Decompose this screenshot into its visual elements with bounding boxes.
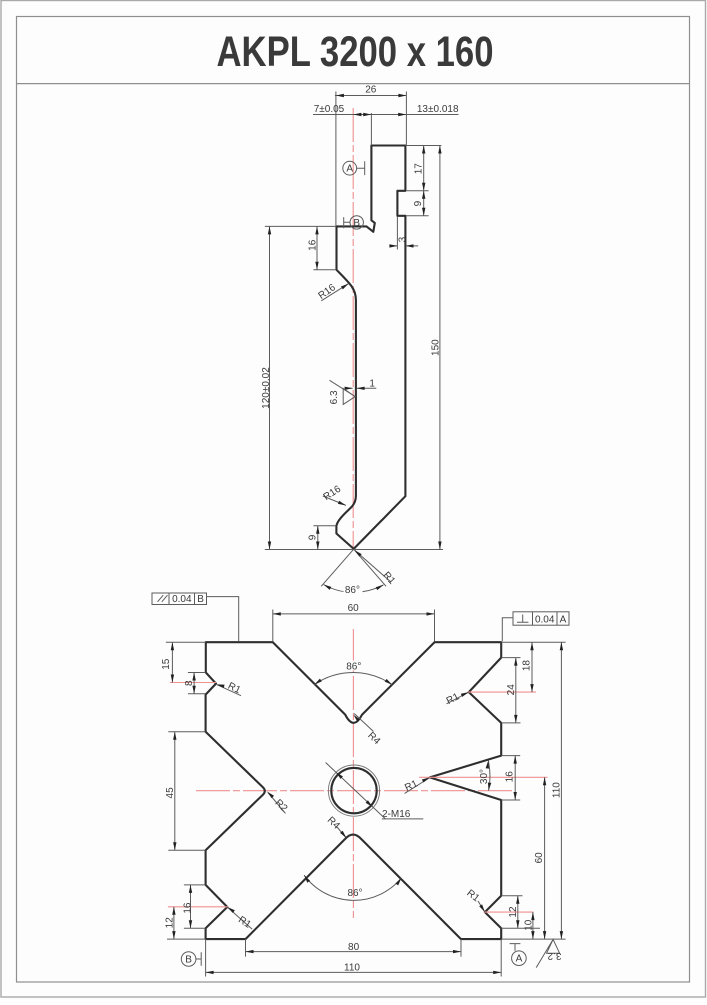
svg-text:7±0.05: 7±0.05 — [314, 104, 345, 115]
svg-text:17: 17 — [413, 163, 424, 175]
svg-text:3: 3 — [398, 236, 409, 242]
svg-text:18: 18 — [521, 660, 532, 672]
svg-text:0.04: 0.04 — [535, 615, 555, 626]
svg-text:30°: 30° — [479, 769, 490, 784]
svg-text:A: A — [346, 164, 353, 175]
svg-text:26: 26 — [365, 85, 377, 96]
svg-text:1: 1 — [369, 378, 375, 389]
svg-text:8: 8 — [184, 680, 195, 686]
svg-text:45: 45 — [165, 787, 176, 799]
svg-text:16: 16 — [182, 902, 193, 914]
svg-text:B: B — [353, 218, 360, 229]
svg-text:13±0.018: 13±0.018 — [417, 104, 459, 115]
svg-text:15: 15 — [161, 658, 172, 670]
svg-text:60: 60 — [348, 603, 360, 614]
svg-text:86°: 86° — [345, 585, 360, 596]
svg-text:B: B — [185, 955, 192, 966]
svg-text:150: 150 — [431, 339, 442, 356]
svg-text:60: 60 — [534, 852, 545, 864]
svg-text:110: 110 — [551, 782, 562, 798]
svg-text:24: 24 — [506, 684, 517, 696]
svg-text:12: 12 — [508, 906, 519, 918]
svg-text:B: B — [197, 594, 204, 605]
svg-text:80: 80 — [348, 942, 360, 953]
svg-text:9: 9 — [413, 200, 424, 206]
svg-text:0.04: 0.04 — [172, 594, 192, 605]
svg-text:10: 10 — [524, 919, 535, 931]
svg-text:AKPL 3200 x 160: AKPL 3200 x 160 — [217, 28, 494, 76]
svg-text:110: 110 — [344, 962, 360, 973]
svg-text:16: 16 — [504, 771, 515, 783]
svg-text:2-M16: 2-M16 — [382, 809, 411, 820]
svg-text:12: 12 — [165, 917, 176, 929]
svg-text:86°: 86° — [347, 888, 362, 899]
svg-text:120±0.02: 120±0.02 — [261, 367, 272, 409]
svg-text:6.3: 6.3 — [329, 390, 340, 404]
svg-text:A: A — [560, 615, 567, 626]
svg-text:16: 16 — [308, 239, 319, 251]
svg-text:3.2: 3.2 — [547, 950, 561, 961]
svg-text:9: 9 — [308, 534, 319, 540]
svg-text:A: A — [516, 954, 523, 965]
svg-text:86°: 86° — [346, 662, 361, 673]
